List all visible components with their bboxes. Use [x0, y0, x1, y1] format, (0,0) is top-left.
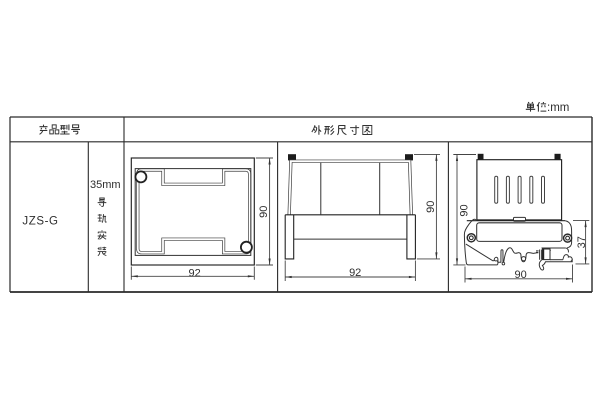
svg-text:90: 90	[459, 204, 471, 216]
svg-text:92: 92	[349, 267, 361, 279]
svg-text::mm: :mm	[547, 102, 569, 114]
svg-text:JZS-G: JZS-G	[22, 216, 58, 228]
svg-text:37: 37	[576, 236, 588, 248]
svg-text:92: 92	[188, 268, 200, 280]
svg-text:90: 90	[258, 206, 270, 218]
svg-text:90: 90	[425, 201, 437, 213]
svg-text:90: 90	[514, 269, 526, 281]
svg-text:35mm: 35mm	[90, 179, 121, 191]
